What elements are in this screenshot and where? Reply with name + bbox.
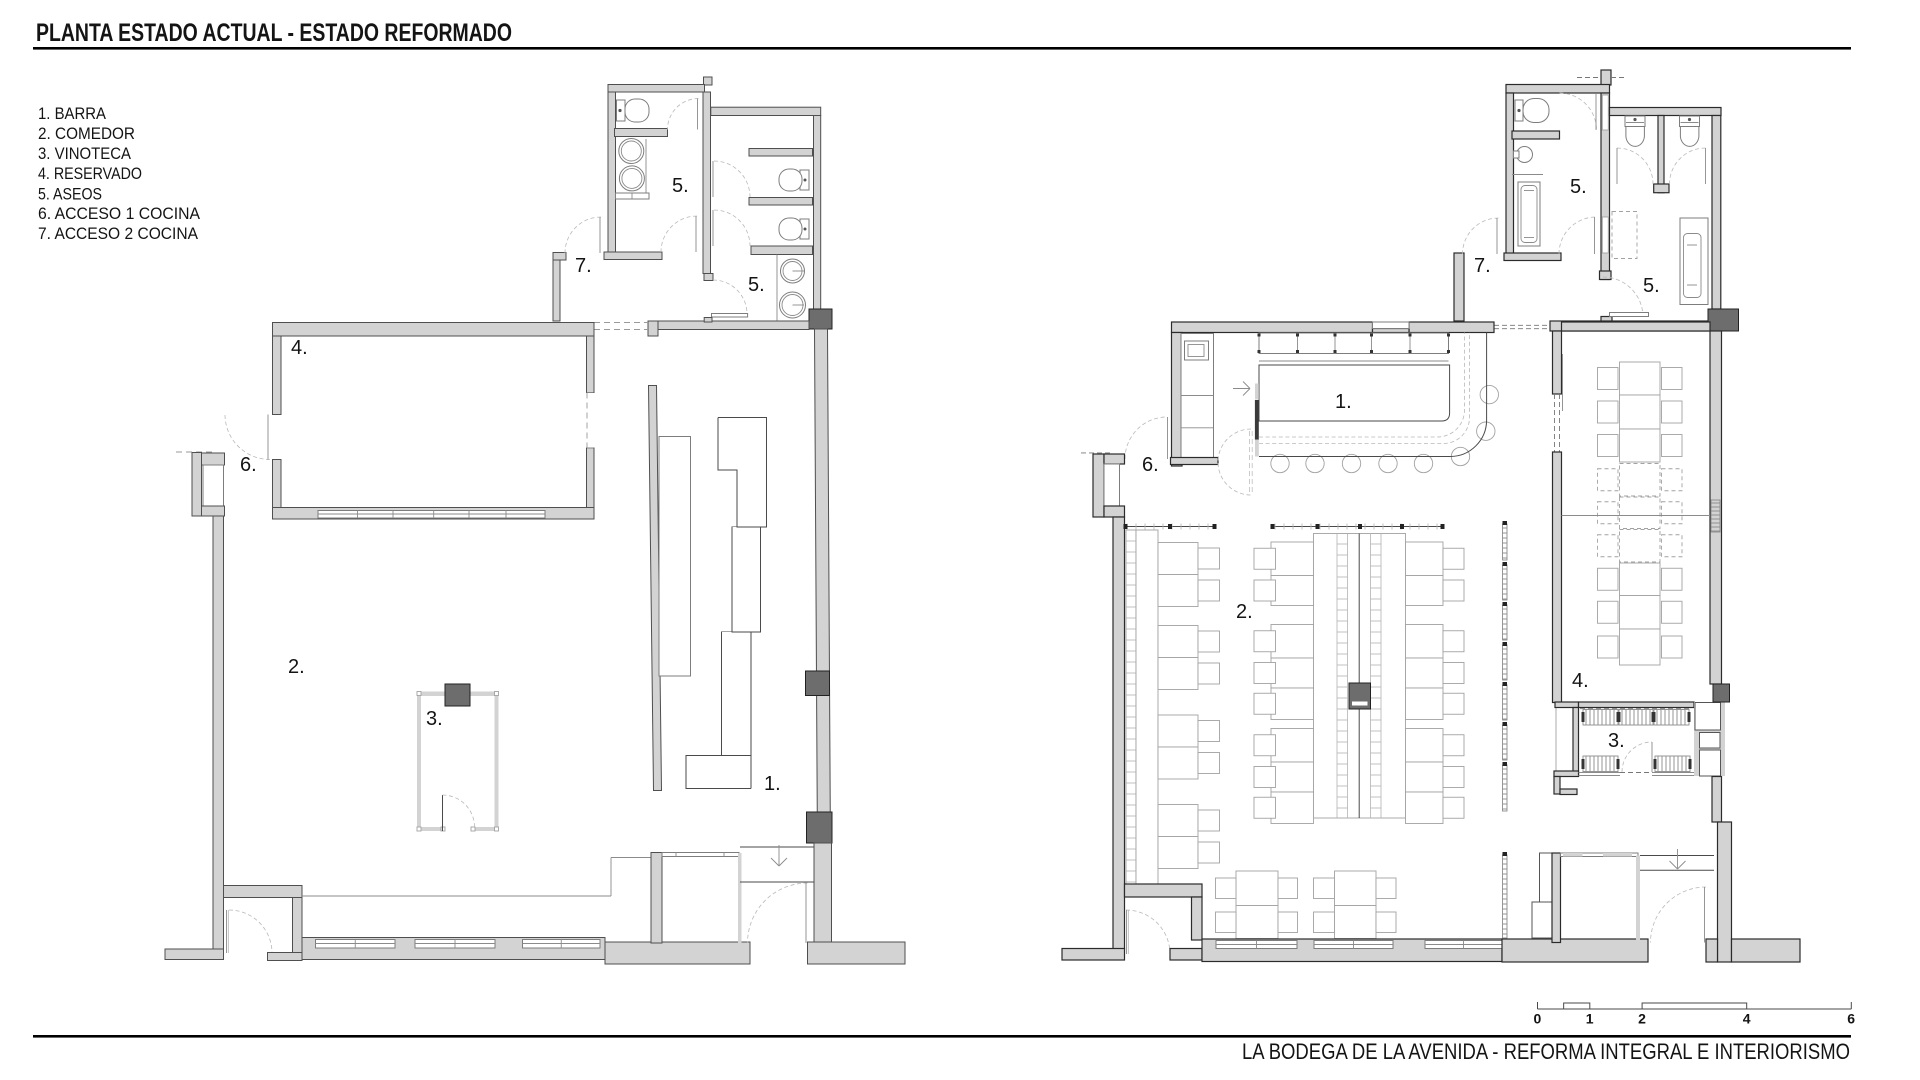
svg-text:5. ASEOS: 5. ASEOS xyxy=(38,186,102,204)
svg-text:1: 1 xyxy=(1586,1011,1594,1027)
svg-text:7. ACCESO 2 COCINA: 7. ACCESO 2 COCINA xyxy=(38,225,198,243)
svg-text:2.: 2. xyxy=(288,656,305,678)
svg-text:4. RESERVADO: 4. RESERVADO xyxy=(38,165,142,183)
svg-text:7.: 7. xyxy=(575,255,592,277)
svg-text:0: 0 xyxy=(1534,1011,1542,1027)
svg-text:4.: 4. xyxy=(291,337,308,359)
svg-text:3. VINOTECA: 3. VINOTECA xyxy=(38,145,131,163)
svg-text:4.: 4. xyxy=(1572,670,1589,692)
svg-text:6. ACCESO 1 COCINA: 6. ACCESO 1 COCINA xyxy=(38,205,200,223)
svg-text:5.: 5. xyxy=(672,175,689,197)
svg-text:7.: 7. xyxy=(1474,255,1491,277)
svg-text:5.: 5. xyxy=(1570,176,1587,198)
svg-text:LA BODEGA DE LA AVENIDA - REFO: LA BODEGA DE LA AVENIDA - REFORMA INTEGR… xyxy=(1242,1039,1850,1064)
svg-text:6.: 6. xyxy=(1142,454,1159,476)
svg-text:PLANTA ESTADO ACTUAL - ESTADO: PLANTA ESTADO ACTUAL - ESTADO REFORMADO xyxy=(36,19,512,47)
svg-text:4: 4 xyxy=(1743,1011,1751,1027)
svg-text:2: 2 xyxy=(1638,1011,1646,1027)
svg-text:1. BARRA: 1. BARRA xyxy=(38,105,106,123)
svg-text:5.: 5. xyxy=(748,274,765,296)
svg-text:3.: 3. xyxy=(1608,730,1625,752)
svg-text:2. COMEDOR: 2. COMEDOR xyxy=(38,125,135,143)
svg-text:3.: 3. xyxy=(426,708,443,730)
svg-text:1.: 1. xyxy=(1335,391,1352,413)
svg-text:6: 6 xyxy=(1847,1011,1855,1027)
svg-text:2.: 2. xyxy=(1236,601,1253,623)
svg-text:6.: 6. xyxy=(240,454,257,476)
svg-text:1.: 1. xyxy=(764,773,781,795)
svg-text:5.: 5. xyxy=(1643,275,1660,297)
